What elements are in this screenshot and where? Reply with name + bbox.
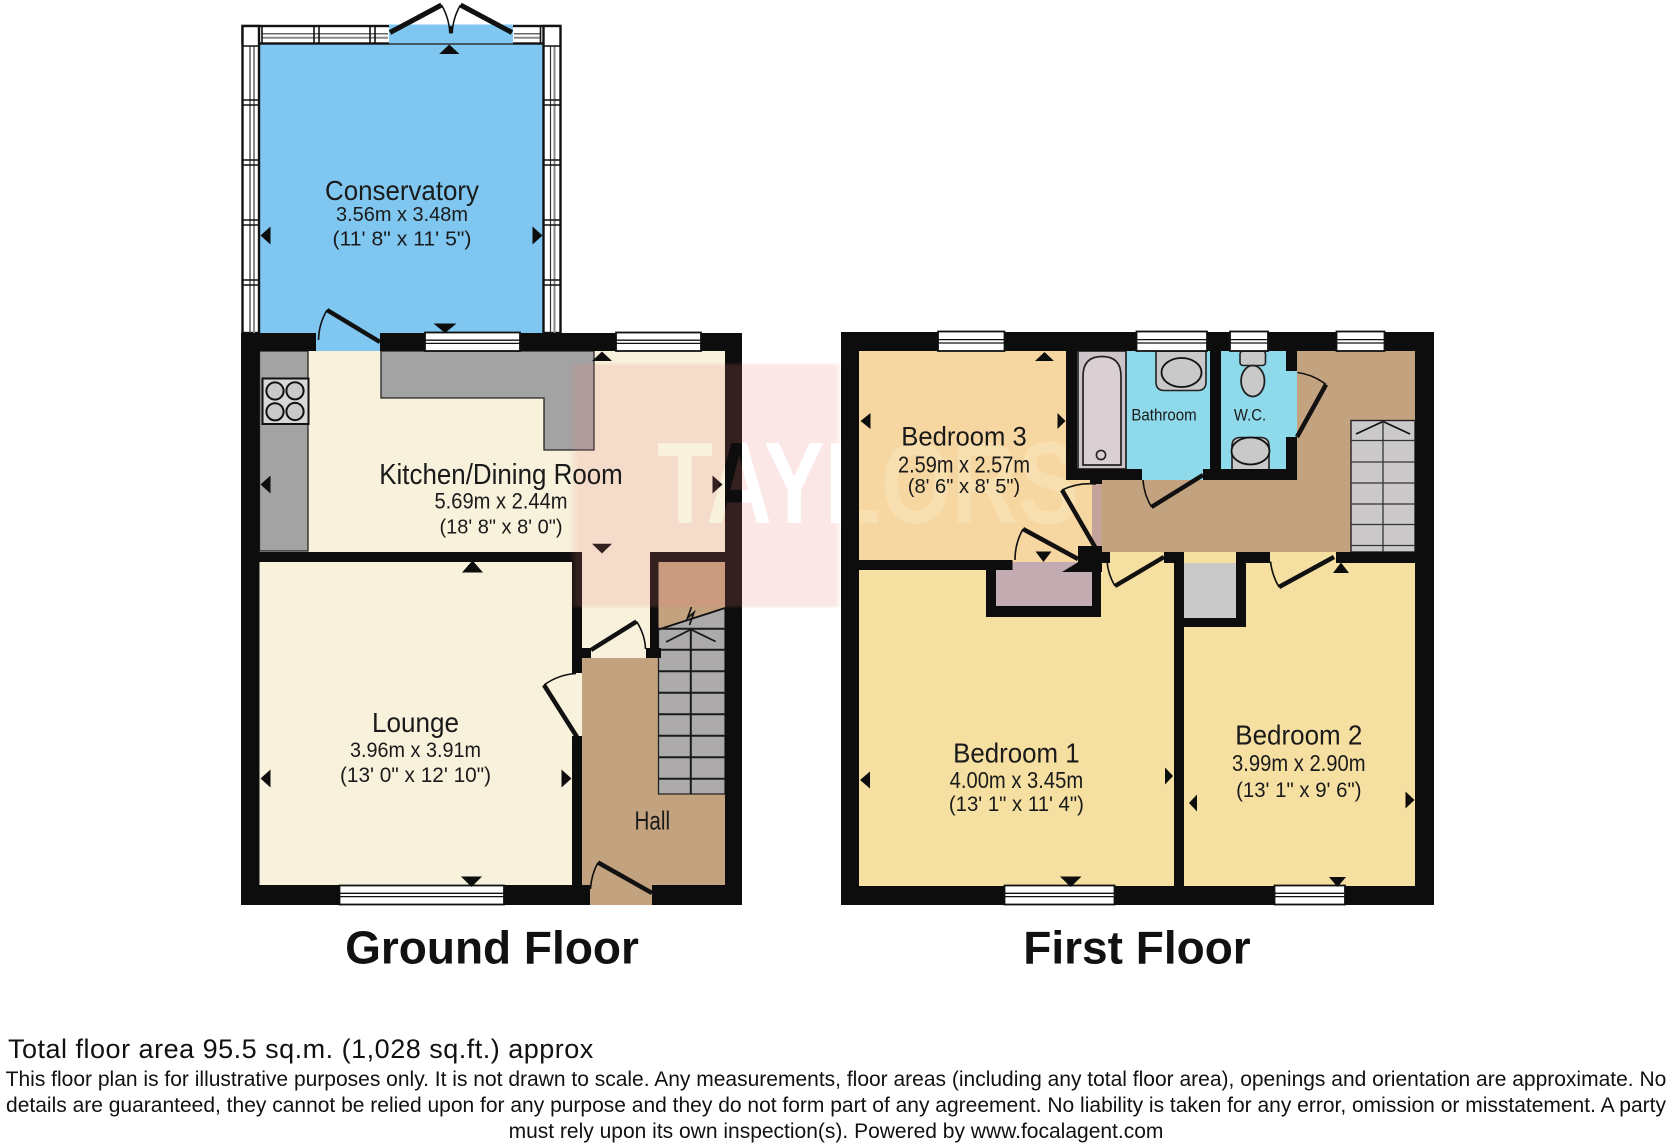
svg-text:Conservatory: Conservatory xyxy=(325,175,479,206)
svg-text:Bathroom: Bathroom xyxy=(1131,407,1196,425)
svg-text:3.56m x 3.48m: 3.56m x 3.48m xyxy=(336,203,468,226)
svg-text:Kitchen/Dining Room: Kitchen/Dining Room xyxy=(379,459,623,491)
svg-text:4.00m x 3.45m: 4.00m x 3.45m xyxy=(950,767,1084,793)
svg-text:5.69m x 2.44m: 5.69m x 2.44m xyxy=(435,489,568,514)
svg-text:Ground Floor: Ground Floor xyxy=(345,922,639,974)
svg-text:must rely upon its own inspect: must rely upon its own inspection(s). Po… xyxy=(509,1120,1164,1143)
svg-text:3.96m x 3.91m: 3.96m x 3.91m xyxy=(350,738,481,762)
svg-text:First Floor: First Floor xyxy=(1023,922,1251,974)
svg-text:Bedroom 1: Bedroom 1 xyxy=(953,738,1080,769)
svg-text:(13' 1" x 9' 6"): (13' 1" x 9' 6") xyxy=(1236,778,1361,802)
svg-text:(18' 8" x 8' 0"): (18' 8" x 8' 0") xyxy=(440,517,563,539)
svg-text:2.59m x 2.57m: 2.59m x 2.57m xyxy=(898,452,1030,478)
svg-text:Bedroom 2: Bedroom 2 xyxy=(1235,720,1362,751)
svg-text:details are guaranteed, they c: details are guaranteed, they cannot be r… xyxy=(6,1094,1666,1117)
svg-text:(13' 1" x 11' 4"): (13' 1" x 11' 4") xyxy=(949,792,1084,816)
svg-text:Bedroom 3: Bedroom 3 xyxy=(901,422,1027,452)
svg-text:Lounge: Lounge xyxy=(372,707,459,738)
svg-text:(8' 6" x 8' 5"): (8' 6" x 8' 5") xyxy=(908,476,1021,498)
svg-text:(13' 0" x 12' 10"): (13' 0" x 12' 10") xyxy=(340,763,491,787)
svg-text:This floor plan is for illustr: This floor plan is for illustrative purp… xyxy=(6,1068,1667,1091)
svg-text:Total floor area 95.5 sq.m. (1: Total floor area 95.5 sq.m. (1,028 sq.ft… xyxy=(8,1034,594,1064)
svg-text:Hall: Hall xyxy=(635,806,671,836)
svg-text:(11' 8" x 11' 5"): (11' 8" x 11' 5") xyxy=(333,228,472,251)
svg-text:W.C.: W.C. xyxy=(1234,407,1266,425)
svg-text:3.99m x 2.90m: 3.99m x 2.90m xyxy=(1232,750,1366,776)
